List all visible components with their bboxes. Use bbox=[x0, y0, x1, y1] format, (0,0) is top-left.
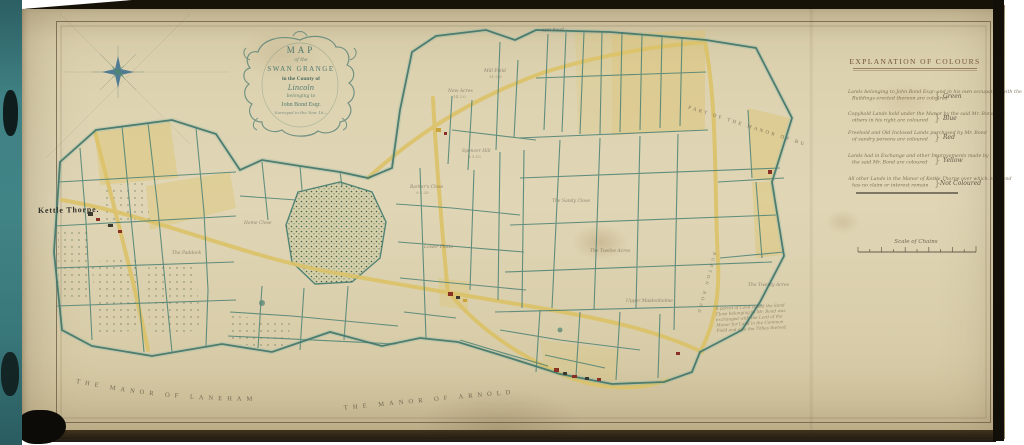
svg-text:THE MANOR OF LANEHAM: THE MANOR OF LANEHAM bbox=[75, 378, 257, 403]
field-name: The Sandy Close bbox=[552, 198, 590, 204]
cartouche-line: MAP bbox=[287, 45, 316, 55]
legend-color-label: Red bbox=[942, 134, 955, 141]
cartouche-line: Lincoln bbox=[287, 84, 315, 92]
woodland bbox=[286, 182, 386, 284]
manor-arc-left-label: THE MANOR OF LANEHAM bbox=[75, 378, 257, 403]
field-name: Home Close bbox=[243, 220, 272, 226]
legend-brace: } bbox=[934, 91, 940, 102]
scale-bar: Scale of Chains bbox=[858, 239, 976, 252]
cartouche-line: SWAN GRANGE bbox=[267, 65, 334, 73]
map-canvas: MAP of the SWAN GRANGE in the County of … bbox=[0, 0, 1024, 445]
field-area: 31.0.5 bbox=[489, 74, 502, 79]
legend-brace: } bbox=[934, 132, 940, 143]
legend-row: Copyhold Lands held under the Manor by t… bbox=[848, 111, 1005, 124]
field-area: 14.2.0 bbox=[453, 94, 466, 99]
title-cartouche: MAP of the SWAN GRANGE in the County of … bbox=[244, 32, 356, 137]
mill-road-label: Mill Road bbox=[541, 26, 564, 34]
legend-color-label: Not Coloured bbox=[939, 180, 981, 187]
paper-edge-bottom bbox=[28, 430, 996, 442]
cartouche-line: of the bbox=[294, 57, 308, 63]
legend-brace: } bbox=[934, 155, 940, 166]
paper-edge-top bbox=[26, 0, 998, 9]
legend-row-text: the said Mr. Bond are coloured bbox=[852, 160, 927, 166]
svg-text:THE MANOR OF ARNOLD: THE MANOR OF ARNOLD bbox=[344, 389, 516, 412]
legend-row-text: of sundry persons are coloured bbox=[852, 137, 928, 143]
paper-edge-right bbox=[993, 0, 1004, 441]
legend-brace: } bbox=[934, 113, 940, 124]
historic-map-scan: MAP of the SWAN GRANGE in the County of … bbox=[0, 0, 1024, 445]
manor-arc-right-label: THE MANOR OF ARNOLD bbox=[344, 389, 516, 412]
field-name: The Twenty Acres bbox=[748, 282, 790, 288]
legend-row-text: Copyhold Lands held under the Manor by t… bbox=[848, 111, 1005, 117]
cartouche-line: John Bond Esqr. bbox=[281, 102, 321, 108]
field-area: 9.1.20 bbox=[416, 190, 429, 195]
field-name: Lower Platts bbox=[423, 244, 454, 250]
binding-blotch bbox=[1, 352, 19, 396]
scale-label: Scale of Chains bbox=[894, 239, 937, 245]
cartouche-line: in the County of bbox=[282, 76, 320, 82]
binding-blotch bbox=[3, 90, 18, 136]
cartouche-line: Surveyed in the Year 18— bbox=[275, 110, 328, 115]
field-name: The Paddock bbox=[172, 250, 201, 256]
village-label: Kettle Thorpe. bbox=[38, 205, 99, 215]
legend-row: Lands had in Exchange and other Improvem… bbox=[847, 153, 989, 166]
legend-row: Freehold and Old Inclosed Lands purchase… bbox=[847, 130, 987, 143]
field-name: Upper Maidenholme bbox=[626, 298, 673, 304]
legend-row: All other Lands in the Manor of Kettle T… bbox=[847, 176, 1012, 189]
cartouche-line: belonging to bbox=[287, 93, 316, 99]
field-name: The Twelve Acres bbox=[590, 248, 631, 254]
marginal-note: A parcel of Land called the Sand Close b… bbox=[714, 302, 787, 333]
binding-cloth-strip bbox=[0, 0, 22, 445]
legend-row-text: has no claim or interest remain bbox=[852, 183, 928, 189]
legend-row-text: All other Lands in the Manor of Kettle T… bbox=[847, 176, 1012, 182]
legend-row-text: Freehold and Old Inclosed Lands purchase… bbox=[847, 130, 987, 136]
legend-row-text: Lands had in Exchange and other Improvem… bbox=[847, 153, 989, 159]
field-area: 8.3.10 bbox=[468, 154, 481, 159]
legend-row-text: others in his right are coloured bbox=[852, 118, 928, 124]
legend-color-label: Green bbox=[943, 93, 962, 100]
legend-color-label: Yellow bbox=[943, 157, 963, 164]
legend-heading: EXPLANATION OF COLOURS bbox=[849, 57, 980, 66]
legend-color-label: Blue bbox=[942, 115, 957, 122]
